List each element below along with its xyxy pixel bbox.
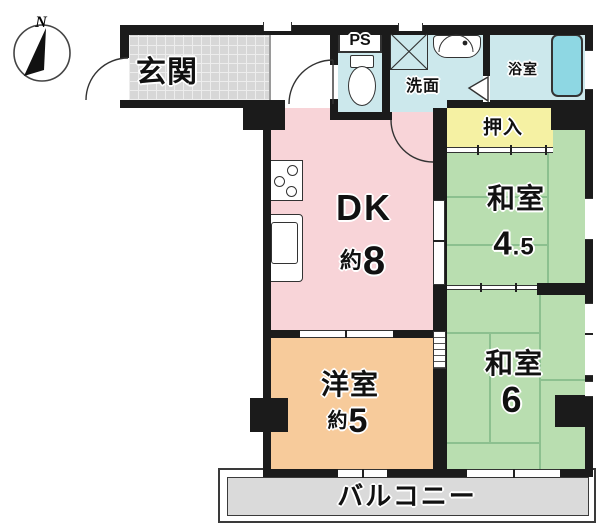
japanese-room-45-label: 和室 [487, 185, 545, 213]
japanese-room-6-size: 6 [501, 382, 522, 418]
folding-door-icon [469, 77, 488, 101]
washroom-door-arc [391, 120, 433, 162]
size-int: 4 [493, 225, 512, 262]
western-room-size: 約5 [328, 404, 369, 438]
dk-approx: 約 [340, 248, 363, 273]
bathroom-label: 浴室 [508, 62, 538, 76]
western-approx: 約 [328, 410, 349, 432]
entrance-door-arc [86, 58, 128, 100]
dk-size-label: 約8 [340, 241, 386, 281]
dk-size: 8 [363, 239, 386, 283]
western-room-label: 洋室 [321, 371, 379, 399]
ps-label: PS [349, 33, 370, 49]
sink-bowl-icon [439, 35, 473, 52]
western-size: 5 [349, 402, 369, 440]
washroom-label: 洗面 [406, 79, 440, 95]
symbols-overlay: N [0, 0, 612, 530]
size-frac: .5 [513, 234, 535, 261]
compass-north-label: N [34, 14, 48, 31]
dk-label: DK [336, 190, 392, 226]
sink-faucet-icon [463, 41, 468, 46]
closet-label: 押入 [483, 119, 523, 138]
entrance-label: 玄関 [136, 58, 198, 88]
japanese-room-6-label: 和室 [485, 350, 543, 378]
floorplan: N 玄関 PS 洗面 浴室 押入 DK 約8 和室 4.5 和室 6 洋室 約5… [0, 0, 612, 530]
hall-door-arc [289, 60, 333, 104]
balcony-label: バルコニー [337, 483, 476, 509]
japanese-room-45-size: 4.5 [493, 227, 534, 260]
